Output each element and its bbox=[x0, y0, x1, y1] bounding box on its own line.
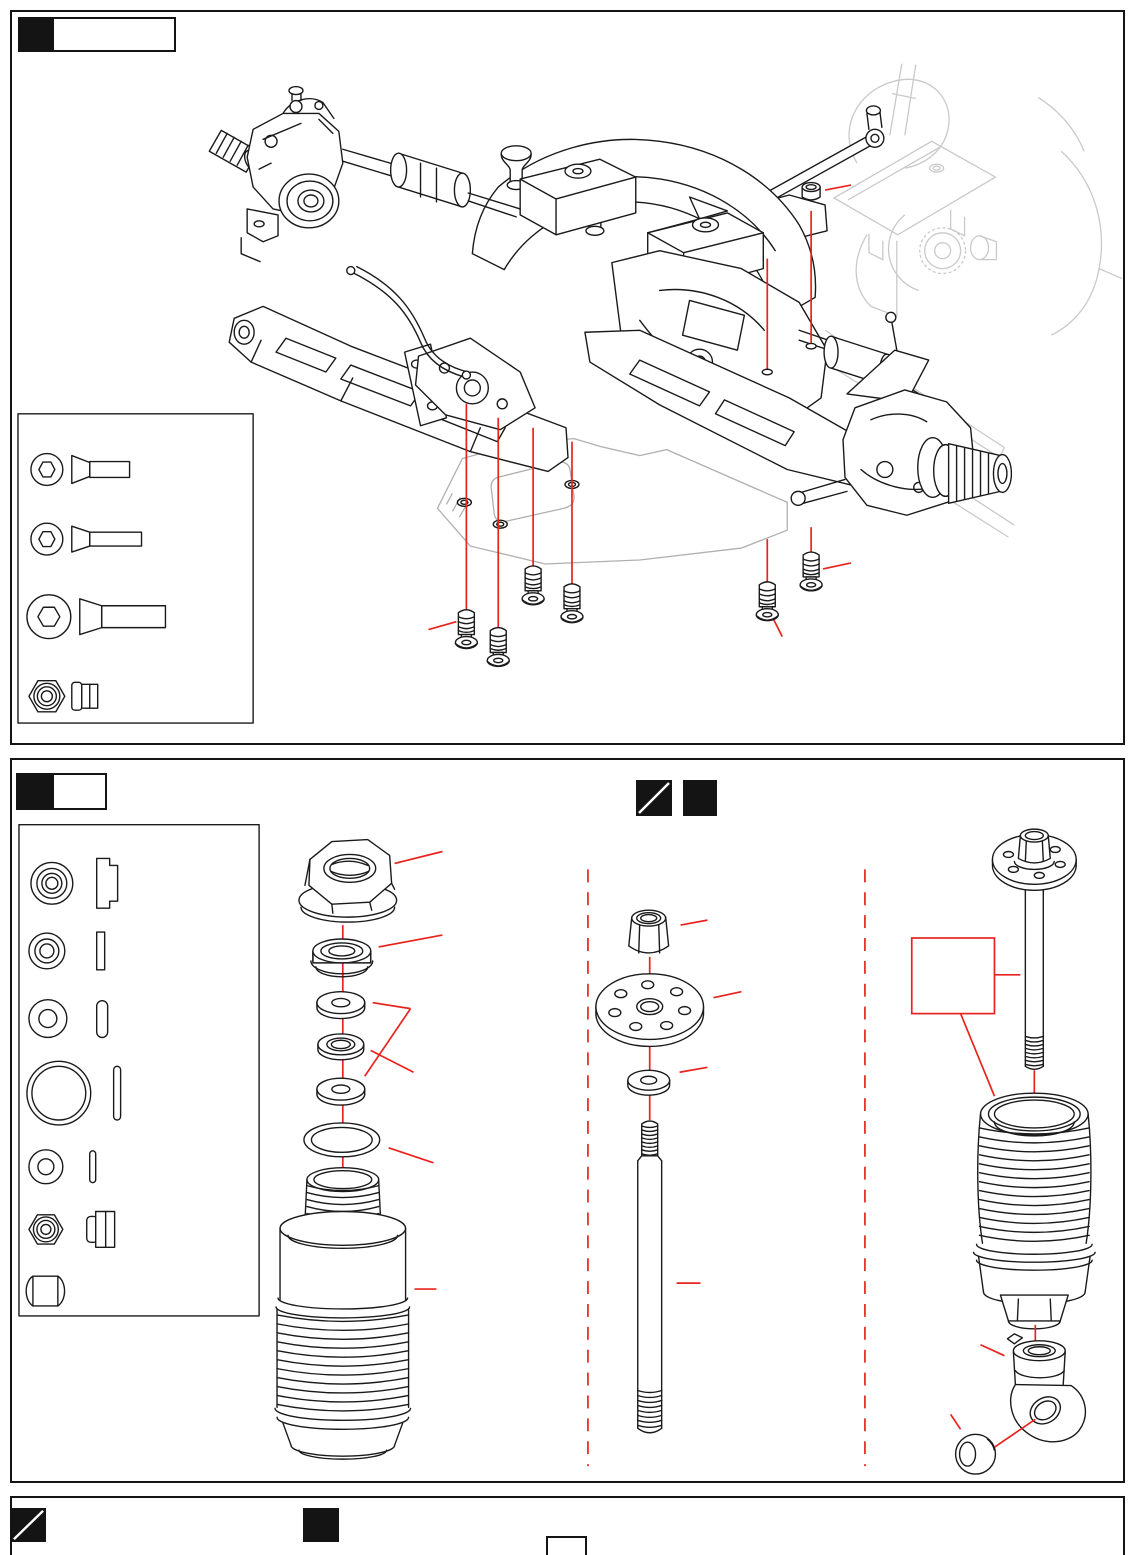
assembled-shock-column bbox=[912, 829, 1095, 1474]
part-lock-nut bbox=[29, 1211, 115, 1247]
chassis-plate bbox=[437, 439, 787, 564]
panel-top-step bbox=[10, 10, 1125, 745]
shock-seal-washer-2 bbox=[317, 1078, 365, 1105]
diagonal-split-square-icon bbox=[636, 780, 672, 816]
step-number-box bbox=[16, 773, 52, 810]
part-shock-bushing-large bbox=[31, 858, 118, 908]
shock-assembly-diagram bbox=[12, 760, 1123, 1481]
shock-piston-shaft-column bbox=[596, 910, 741, 1433]
shock-o-ring bbox=[304, 1123, 380, 1157]
column2-callout-lines bbox=[677, 920, 742, 1283]
part-shock-seal-washer bbox=[29, 932, 105, 970]
piston-lock-nut bbox=[629, 910, 669, 953]
shock-piston bbox=[596, 974, 704, 1047]
shock-body-front bbox=[275, 1168, 411, 1459]
shock-body-assembled bbox=[974, 1093, 1096, 1329]
hardware-item-screw-long bbox=[27, 595, 166, 639]
hardware-item-lock-nut bbox=[29, 681, 98, 712]
pivot-ball bbox=[956, 1434, 996, 1474]
right-hub-assembly bbox=[791, 312, 1011, 515]
step-title-box bbox=[52, 17, 176, 52]
piston-washer bbox=[628, 1070, 670, 1095]
filled-square-icon bbox=[683, 780, 717, 816]
shock-seal-cap bbox=[311, 939, 373, 977]
diagonal-split-square-icon bbox=[11, 1508, 46, 1542]
part-washer-small bbox=[29, 1150, 96, 1184]
note-box-leaders bbox=[961, 975, 1021, 1096]
filled-square-icon bbox=[303, 1508, 339, 1542]
hinge-pin-brace bbox=[405, 338, 536, 429]
shock-shaft bbox=[638, 1121, 662, 1433]
left-hub-assembly bbox=[209, 87, 343, 262]
note-box bbox=[912, 938, 995, 1014]
hardware-item-screw-medium bbox=[31, 523, 142, 555]
hardware-legend bbox=[18, 414, 253, 723]
screw-hole bbox=[762, 369, 772, 375]
step-title-box bbox=[52, 773, 107, 810]
page-number-tab bbox=[546, 1536, 587, 1555]
panel-bottom-step bbox=[10, 758, 1125, 1483]
shock-seal-washer-1 bbox=[317, 992, 365, 1019]
shock-cap-seal-stack-column bbox=[275, 840, 442, 1460]
part-o-ring-large bbox=[27, 1061, 121, 1125]
rear-suspension-diagram bbox=[12, 12, 1123, 743]
part-pivot-ball bbox=[26, 1276, 64, 1306]
part-shock-spacer bbox=[29, 1000, 108, 1038]
shock-cap bbox=[299, 840, 397, 923]
hardware-item-screw-short bbox=[31, 454, 130, 486]
shock-seal-bushing bbox=[318, 1034, 364, 1060]
step-number-box bbox=[18, 17, 52, 52]
lock-nut-callout-part bbox=[802, 183, 820, 200]
shock-rod-end bbox=[1007, 1334, 1085, 1442]
parts-legend bbox=[19, 825, 259, 1316]
screw-hole bbox=[806, 343, 816, 349]
assembled-piston-and-shaft bbox=[992, 829, 1076, 1069]
manual-page bbox=[0, 0, 1135, 1555]
